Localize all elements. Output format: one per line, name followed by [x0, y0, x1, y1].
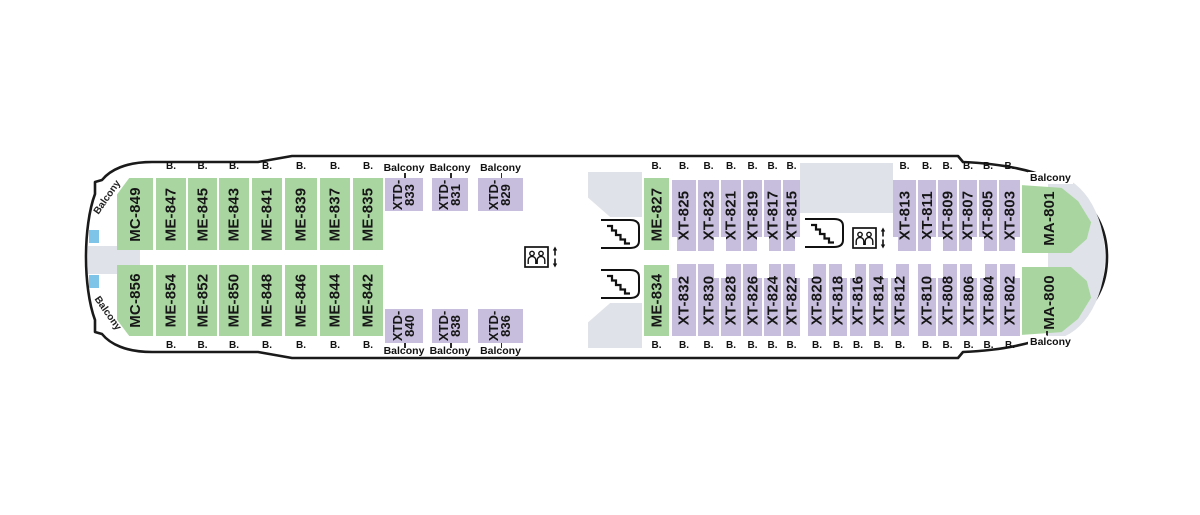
- cabin-label: ME-843: [228, 187, 241, 241]
- cabin-label: XT-822: [785, 275, 798, 325]
- cabin-xt-823[interactable]: XT-823: [698, 180, 719, 251]
- cabin-label: XT-832: [678, 275, 691, 325]
- cabin-xt-832[interactable]: XT-832: [672, 264, 696, 336]
- cabin-notch: [795, 237, 800, 252]
- cabin-me-842[interactable]: ME-842: [353, 265, 383, 336]
- cabin-label: XT-803: [1003, 191, 1016, 241]
- b-badge: B.: [768, 340, 778, 351]
- b-badge: B.: [900, 161, 910, 172]
- b-badge: B.: [984, 340, 994, 351]
- b-badge: B.: [704, 340, 714, 351]
- cabin-notch: [972, 263, 977, 278]
- cabin-label: ME-842: [362, 274, 375, 328]
- stern-marker-bottom: [89, 275, 99, 288]
- cabin-notch: [808, 263, 813, 278]
- cabin-xt-805[interactable]: XT-805: [979, 180, 997, 251]
- cabin-label: XTD-831: [438, 179, 462, 209]
- cabin-label: XT-825: [678, 191, 691, 241]
- cabin-label: ME-844: [329, 274, 342, 328]
- cabin-xtd-833[interactable]: XTD-833: [385, 178, 423, 211]
- cabin-label: ME-835: [362, 187, 375, 241]
- cabin-label: XT-806: [962, 275, 975, 325]
- cabin-xt-802[interactable]: XT-802: [1000, 264, 1020, 336]
- cabin-notch: [891, 263, 896, 278]
- cabin-notch: [972, 237, 977, 252]
- balcony-tick: [404, 343, 406, 348]
- b-badge: B.: [922, 161, 932, 172]
- cabin-notch: [883, 263, 888, 278]
- cabin-label: ME-841: [261, 187, 274, 241]
- cabin-label: XTD-833: [392, 179, 416, 209]
- cabin-notch: [979, 237, 984, 252]
- b-badge: B.: [262, 161, 272, 172]
- cabin-notch: [931, 263, 936, 278]
- stairs-icon: [599, 218, 641, 250]
- stairs-icon: [599, 268, 641, 300]
- cabin-label: XT-802: [1004, 275, 1017, 325]
- cabin-notch: [757, 237, 762, 252]
- deck-plan: Balcony Balcony MC-849ME-847ME-845ME-843…: [0, 0, 1200, 515]
- cabin-me-847[interactable]: ME-847: [156, 178, 186, 250]
- cabin-label: XT-821: [725, 191, 738, 241]
- cabin-xt-818[interactable]: XT-818: [829, 264, 847, 336]
- cabin-label: ME-848: [261, 274, 274, 328]
- cabin-label: XT-824: [766, 275, 779, 325]
- b-badge: B.: [296, 340, 306, 351]
- cabin-notch: [672, 263, 677, 278]
- cabin-notch: [938, 237, 943, 252]
- cabin-notch: [938, 263, 943, 278]
- cabin-xt-824[interactable]: XT-824: [764, 264, 781, 336]
- b-badge: B.: [229, 161, 239, 172]
- cabin-me-844[interactable]: ME-844: [320, 265, 350, 336]
- b-badge: B.: [787, 161, 797, 172]
- cabin-xt-804[interactable]: XT-804: [980, 264, 997, 336]
- cabin-notch: [842, 263, 847, 278]
- b-badge: B.: [652, 161, 662, 172]
- balcony-badge: Balcony: [1028, 336, 1073, 348]
- cabin-label: ME-839: [295, 187, 308, 241]
- cabin-xtd-836[interactable]: XTD-836: [478, 309, 523, 343]
- cabin-notch: [721, 237, 726, 252]
- cabin-notch: [721, 263, 726, 278]
- cabin-label: XT-813: [898, 191, 911, 241]
- cabin-notch: [757, 263, 762, 278]
- cabin-label: MC-856: [129, 273, 142, 328]
- cabin-me-848[interactable]: ME-848: [252, 265, 282, 336]
- cabin-label: MA-801: [1043, 191, 1056, 246]
- cabin-label: XT-826: [746, 275, 759, 325]
- cabin-label: XTD-829: [489, 179, 513, 209]
- cabin-xt-813[interactable]: XT-813: [893, 180, 916, 251]
- cabin-notch: [1015, 237, 1020, 252]
- cabin-label: XT-808: [941, 275, 954, 325]
- cabin-label: XTD-838: [438, 311, 462, 341]
- cabin-me-843[interactable]: ME-843: [219, 178, 249, 250]
- cabin-label: XT-816: [852, 275, 865, 325]
- cabin-me-850[interactable]: ME-850: [219, 265, 249, 336]
- b-badge: B.: [748, 340, 758, 351]
- cabin-label: MC-849: [129, 187, 142, 242]
- b-badge: B.: [963, 161, 973, 172]
- b-badge: B.: [229, 340, 239, 351]
- b-badge: B.: [679, 340, 689, 351]
- balcony-tick: [501, 173, 503, 178]
- cabin-xt-810[interactable]: XT-810: [918, 264, 936, 336]
- cabin-notch: [714, 263, 719, 278]
- balcony-tick: [450, 343, 452, 348]
- cabin-notch: [764, 237, 769, 252]
- cabin-xt-811[interactable]: XT-811: [918, 180, 936, 251]
- b-badge: B.: [943, 340, 953, 351]
- cabin-me-834[interactable]: ME-834: [644, 265, 669, 336]
- cabin-label: ME-845: [196, 187, 209, 241]
- cabin-label: XT-815: [785, 191, 798, 241]
- b-badge: B.: [943, 161, 953, 172]
- balcony-tick: [1046, 331, 1048, 335]
- b-badge: B.: [874, 340, 884, 351]
- b-badge: B.: [198, 340, 208, 351]
- cabin-me-852[interactable]: ME-852: [188, 265, 217, 336]
- b-badge: B.: [679, 161, 689, 172]
- cabin-label: XT-811: [921, 191, 934, 240]
- b-badge: B.: [166, 161, 176, 172]
- cabin-xt-816[interactable]: XT-816: [850, 264, 866, 336]
- cabin-label: XT-807: [962, 191, 975, 241]
- cabin-xt-803[interactable]: XT-803: [999, 180, 1020, 251]
- b-badge: B.: [787, 340, 797, 351]
- balcony-tick: [501, 343, 503, 348]
- balcony-tick: [450, 173, 452, 178]
- cabin-label: XTD-836: [489, 311, 513, 341]
- cabin-label: ME-846: [295, 274, 308, 328]
- cabin-xtd-840[interactable]: XTD-840: [385, 309, 423, 343]
- cabin-me-839[interactable]: ME-839: [285, 178, 317, 250]
- cabin-notch: [764, 263, 769, 278]
- cabin-notch: [714, 237, 719, 252]
- cabin-me-835[interactable]: ME-835: [353, 178, 383, 250]
- cabin-label: XT-830: [702, 275, 715, 325]
- balcony-tick: [404, 173, 406, 178]
- cabin-label: XT-810: [921, 275, 934, 325]
- cabin-me-846[interactable]: ME-846: [285, 265, 317, 336]
- stairs-icon: [803, 217, 845, 249]
- cabin-label: XT-818: [832, 275, 845, 325]
- cabin-xt-812[interactable]: XT-812: [891, 264, 909, 336]
- cabin-notch: [980, 263, 985, 278]
- cabin-xtd-829[interactable]: XTD-829: [478, 178, 523, 211]
- cabin-label: ME-852: [196, 274, 209, 328]
- cabin-label: XT-812: [894, 275, 907, 325]
- hull-outline: [0, 0, 1200, 515]
- cabin-notch: [893, 237, 898, 252]
- cabin-notch: [1015, 263, 1020, 278]
- cabin-label: XT-828: [725, 275, 738, 325]
- cabin-xt-819[interactable]: XT-819: [743, 180, 762, 251]
- cabin-xtd-838[interactable]: XTD-838: [432, 309, 468, 343]
- cabin-xt-815[interactable]: XT-815: [783, 180, 800, 251]
- elevator-icon: [524, 245, 562, 269]
- cabin-label: XT-814: [872, 275, 885, 325]
- b-badge: B.: [768, 161, 778, 172]
- b-badge: B.: [748, 161, 758, 172]
- cabin-me-841[interactable]: ME-841: [252, 178, 282, 250]
- cabin-xt-828[interactable]: XT-828: [721, 264, 741, 336]
- cabin-label: XT-809: [941, 191, 954, 241]
- cabin-label: ME-854: [165, 274, 178, 328]
- cabin-xt-820[interactable]: XT-820: [808, 264, 826, 336]
- cabin-label: XTD-840: [392, 311, 416, 341]
- cabin-xt-806[interactable]: XT-806: [960, 264, 977, 336]
- cabin-xt-809[interactable]: XT-809: [938, 180, 957, 251]
- balcony-badge: Balcony: [1028, 172, 1073, 184]
- stern-marker-top: [89, 230, 99, 243]
- b-badge: B.: [330, 161, 340, 172]
- cabin-xt-822[interactable]: XT-822: [783, 264, 800, 336]
- b-badge: B.: [853, 340, 863, 351]
- b-badge: B.: [652, 340, 662, 351]
- cabin-label: ME-834: [650, 274, 663, 328]
- b-badge: B.: [262, 340, 272, 351]
- b-badge: B.: [1005, 340, 1015, 351]
- cabin-notch: [850, 263, 855, 278]
- cabin-me-827[interactable]: ME-827: [644, 178, 669, 250]
- cabin-label: ME-837: [329, 187, 342, 241]
- cabin-label: XT-805: [982, 191, 995, 241]
- cabin-me-854[interactable]: ME-854: [156, 265, 186, 336]
- cabin-label: ME-850: [228, 274, 241, 328]
- cabin-label: XT-804: [982, 275, 995, 325]
- b-badge: B.: [922, 340, 932, 351]
- cabin-xt-826[interactable]: XT-826: [743, 264, 762, 336]
- cabin-label: XT-823: [702, 191, 715, 241]
- b-badge: B.: [363, 340, 373, 351]
- cabin-xt-817[interactable]: XT-817: [764, 180, 781, 251]
- b-badge: B.: [704, 161, 714, 172]
- cabin-xt-808[interactable]: XT-808: [938, 264, 957, 336]
- cabin-xt-825[interactable]: XT-825: [672, 180, 696, 251]
- cabin-me-837[interactable]: ME-837: [320, 178, 350, 250]
- stair-lobby-block: [800, 163, 893, 213]
- cabin-notch: [795, 263, 800, 278]
- cabin-mc-849[interactable]: MC-849: [117, 178, 153, 250]
- b-badge: B.: [964, 340, 974, 351]
- b-badge: B.: [330, 340, 340, 351]
- b-badge: B.: [726, 340, 736, 351]
- cabin-label: XT-817: [766, 191, 779, 241]
- cabin-label: ME-847: [165, 187, 178, 241]
- b-badge: B.: [726, 161, 736, 172]
- cabin-xt-821[interactable]: XT-821: [721, 180, 741, 251]
- cabin-label: XT-820: [811, 275, 824, 325]
- cabin-xtd-831[interactable]: XTD-831: [432, 178, 468, 211]
- cabin-label: XT-819: [746, 191, 759, 241]
- cabin-me-845[interactable]: ME-845: [188, 178, 217, 250]
- b-badge: B.: [983, 161, 993, 172]
- cabin-xt-814[interactable]: XT-814: [869, 264, 888, 336]
- elevator-icon: [852, 226, 890, 250]
- cabin-xt-807[interactable]: XT-807: [959, 180, 977, 251]
- b-badge: B.: [166, 340, 176, 351]
- b-badge: B.: [812, 340, 822, 351]
- cabin-xt-830[interactable]: XT-830: [698, 264, 719, 336]
- cabin-label: MA-800: [1043, 275, 1056, 330]
- b-badge: B.: [1005, 161, 1015, 172]
- b-badge: B.: [363, 161, 373, 172]
- cabin-notch: [672, 237, 677, 252]
- b-badge: B.: [833, 340, 843, 351]
- cabin-notch: [931, 237, 936, 252]
- b-badge: B.: [895, 340, 905, 351]
- cabin-label: ME-827: [650, 187, 663, 241]
- b-badge: B.: [198, 161, 208, 172]
- b-badge: B.: [296, 161, 306, 172]
